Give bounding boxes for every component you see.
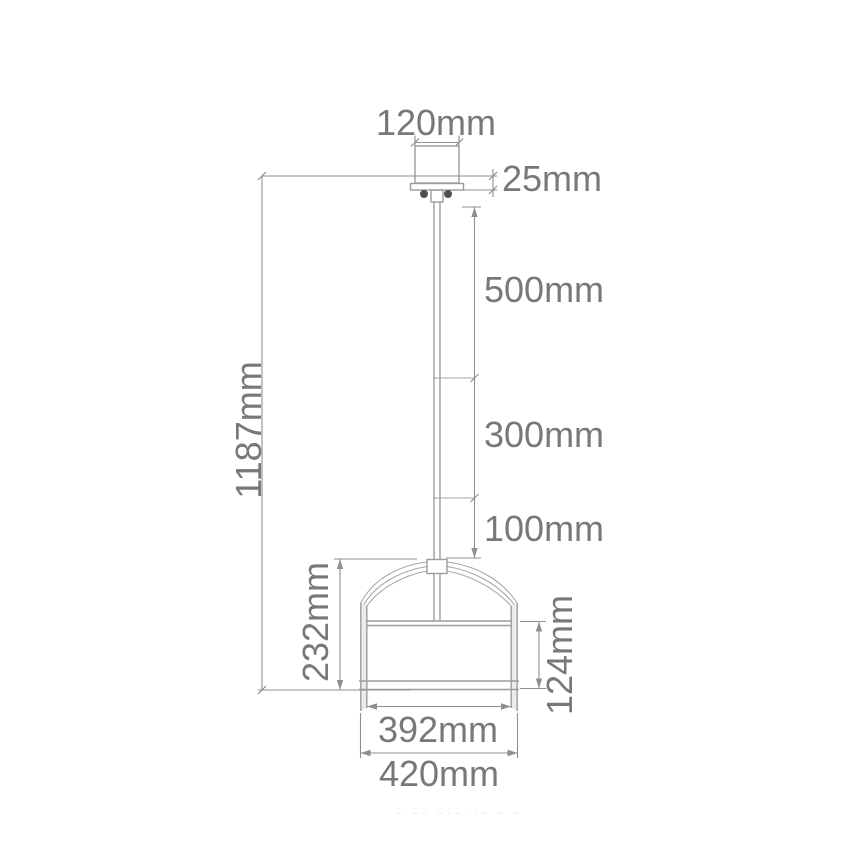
drum-inner-width-arrow-right [501,703,511,710]
dim-rod-segments-group [446,207,481,558]
rod-dim-arrow-down [471,548,477,558]
faint-watermark-fragment: - -- -·-··- - - [396,803,536,823]
dimension-drawing-page: 120mm 25mm 500mm 300mm 100mm 1187mm 232m… [0,0,868,868]
label-drum-outer-width: 420mm [379,753,499,794]
label-rod-lower-segment: 100mm [484,508,604,549]
drum-outer-width-arrow-right [508,750,518,757]
drum-inner-width-arrow-left [367,703,377,710]
drum-top-ring [367,621,511,626]
shade-height-arrow-up [337,559,343,569]
rod-dim-arrow-up [471,207,477,217]
shade-post-left-fill [361,603,367,711]
pendant-lamp-dimension-diagram: 120mm 25mm 500mm 300mm 100mm 1187mm 232m… [0,0,868,868]
shade-post-right-fill [511,603,517,711]
label-overall-height: 1187mm [228,361,269,498]
canopy-screw-right [444,190,452,198]
canopy-screw-left [420,190,428,198]
dim-232mm-group [334,559,417,690]
shade-inner-rod [434,574,440,622]
suspension-rod [434,202,440,559]
canopy-body [415,146,459,183]
label-canopy-width: 120mm [376,102,496,143]
label-rod-middle-segment: 300mm [484,414,604,455]
rod-connector [431,190,443,202]
canopy-group [411,136,464,203]
shade-height-arrow-down [337,680,343,690]
shade-group [359,560,519,712]
drum-outer-width-arrow-left [361,750,371,757]
canopy-base-plate [411,184,464,191]
label-shade-total-height: 232mm [295,562,336,682]
label-drum-inner-width: 392mm [378,709,498,750]
label-drum-height: 124mm [539,595,580,715]
label-canopy-thickness: 25mm [502,158,602,199]
shade-hub [427,560,447,574]
suspension-rod-group [433,202,475,559]
drum-bottom-ring [359,681,519,690]
label-rod-upper-segment: 500mm [484,269,604,310]
